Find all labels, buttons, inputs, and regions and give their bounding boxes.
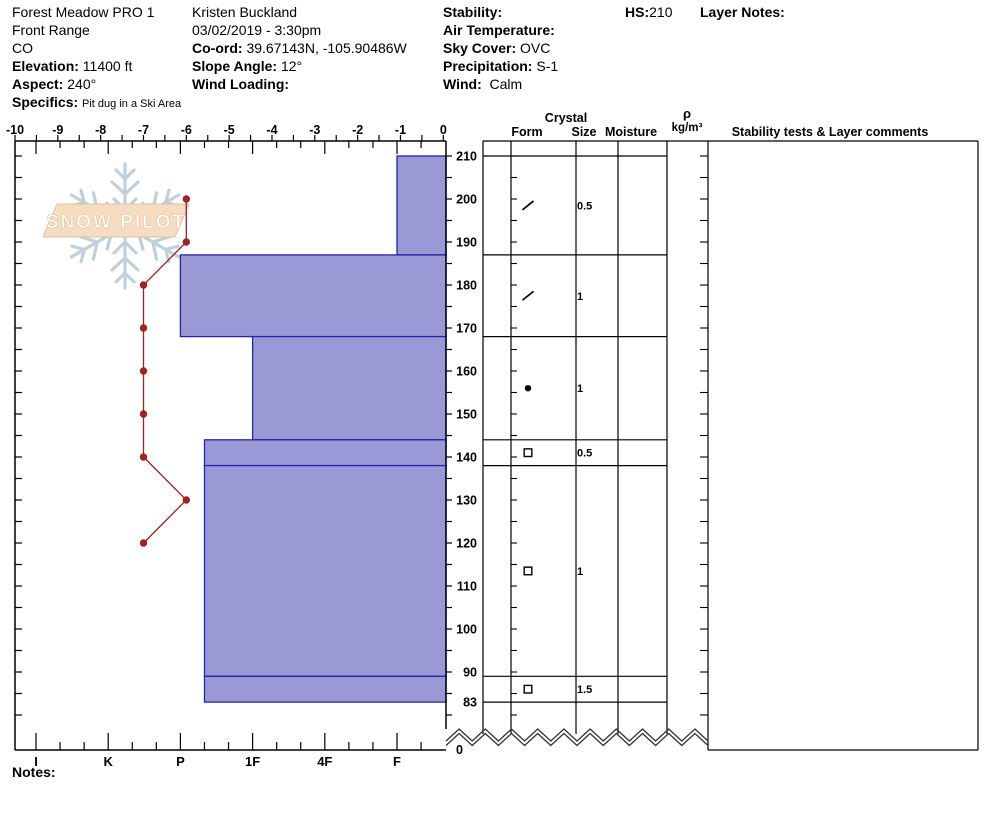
density-header: ρ [683,106,691,121]
temperature-point [183,496,190,503]
comments-header: Stability tests & Layer comments [732,125,929,139]
temp-tick-label: -7 [138,123,149,137]
layer-bar [180,255,446,337]
depth-label: 150 [456,408,477,422]
profile-chart: -10-9-8-7-6-5-4-3-2-10IKP1F4FF2102001901… [0,0,994,840]
depth-label: 130 [456,494,477,508]
hardness-tick-label: F [393,754,401,769]
temp-tick-label: -5 [224,123,235,137]
temperature-line [144,199,187,543]
grain-form-facets-icon [524,567,532,575]
torn-edge-zigzag [446,729,708,741]
temperature-point [183,238,190,245]
grain-form-facets-icon [524,685,532,693]
depth-label: 100 [456,623,477,637]
grain-form-facets-icon [524,449,532,457]
temp-tick-label: -3 [309,123,320,137]
moisture-header: Moisture [605,125,657,139]
snowpit-report: Forest Meadow PRO 1 Front Range CO Eleva… [0,0,994,840]
hardness-tick-label: K [104,754,114,769]
layer-bar [397,156,446,255]
layer-bar [253,337,446,440]
form-header: Form [511,125,542,139]
grain-size-value: 0.5 [577,448,592,460]
depth-label: 90 [463,666,477,680]
temperature-point [140,324,147,331]
temperature-point [140,367,147,374]
depth-label: 83 [463,696,477,710]
hardness-tick-label: 1F [245,754,260,769]
grain-size-value: 1.5 [577,684,592,696]
temp-tick-label: -2 [352,123,363,137]
layer-bar [204,440,446,466]
temp-tick-label: -6 [181,123,192,137]
density-units-header: kg/m³ [672,122,703,134]
temperature-point [140,410,147,417]
depth-label: 190 [456,236,477,250]
depth-label: 110 [457,580,477,594]
temperature-point [140,281,147,288]
depth-label: 200 [456,193,477,207]
temp-tick-label: -1 [395,123,406,137]
temp-tick-label: -10 [6,123,24,137]
grain-size-value: 0.5 [577,200,592,212]
depth-label: 160 [456,365,477,379]
hardness-tick-label: 4F [317,754,332,769]
temp-tick-label: -4 [266,123,277,137]
temp-tick-label: 0 [440,123,447,137]
grain-size-value: 1 [577,383,583,395]
depth-label: 120 [456,537,477,551]
temperature-point [140,539,147,546]
hardness-tick-label: P [176,754,185,769]
notes-label: Notes: [12,763,56,781]
grain-form-rounds-icon [525,385,531,391]
temp-tick-label: -8 [95,123,106,137]
size-header: Size [571,125,596,139]
depth-label: 140 [456,451,477,465]
depth-label: 210 [456,150,477,164]
grain-form-decomposing-icon [523,201,533,209]
temperature-point [183,195,190,202]
layer-bar [204,466,446,677]
depth-label: 170 [456,322,477,336]
torn-edge-zigzag [446,734,708,746]
temperature-point [140,453,147,460]
depth-label: 180 [456,279,477,293]
temp-tick-label: -9 [52,123,63,137]
grain-size-value: 1 [577,566,583,578]
depth-label-ground: 0 [456,743,463,757]
grain-size-value: 1 [577,291,583,303]
layer-bar [204,676,446,702]
crystal-header: Crystal [545,111,587,125]
grain-form-decomposing-icon [523,292,533,300]
